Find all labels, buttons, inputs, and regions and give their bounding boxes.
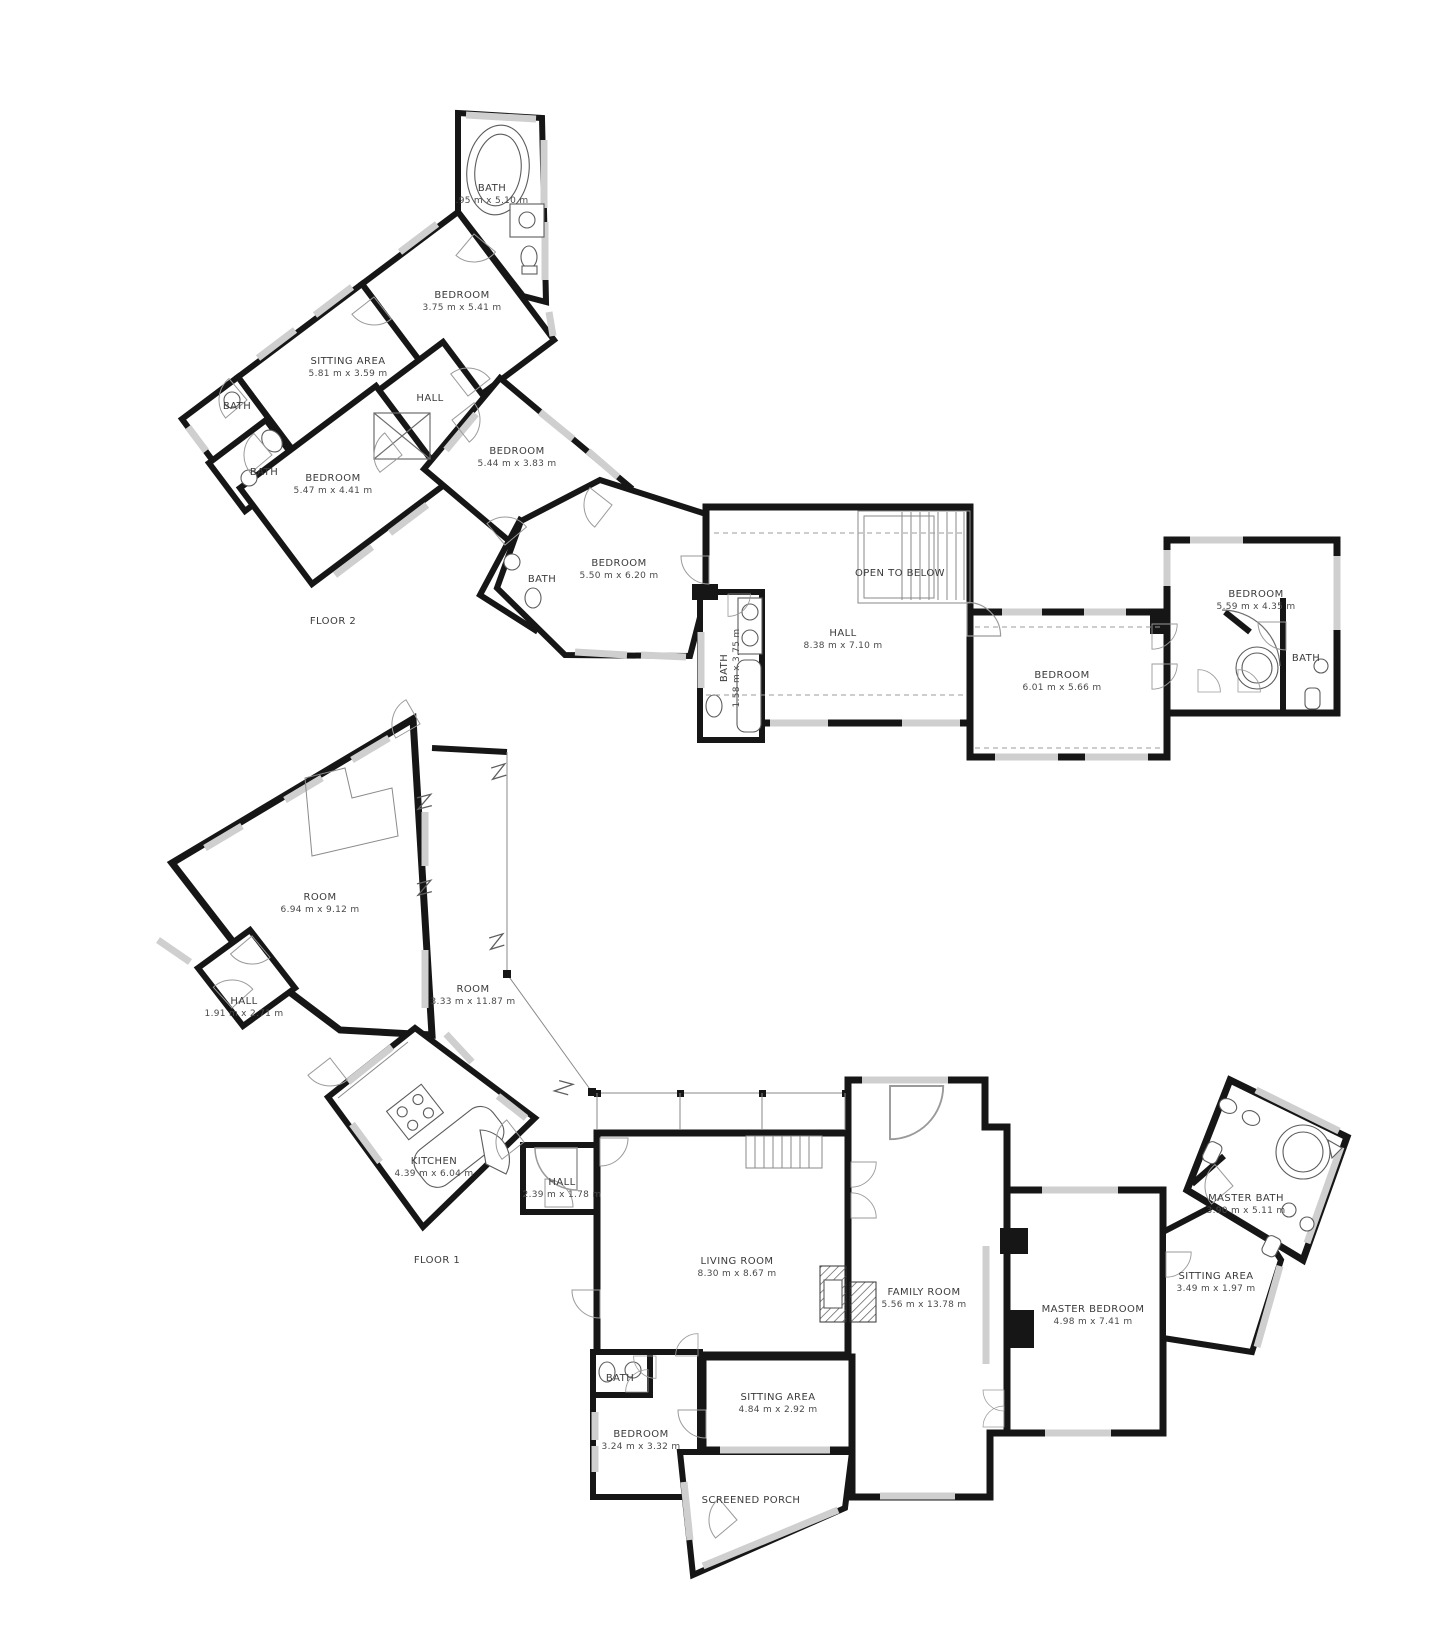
room-label: BEDROOM	[613, 1429, 668, 1440]
floor-2-walls	[182, 113, 1337, 757]
room-label: BEDROOM	[305, 473, 360, 484]
wall-block	[1000, 1228, 1028, 1254]
room-dims: 6.94 m x 9.12 m	[281, 905, 360, 915]
toilet-icon	[706, 695, 722, 717]
room-label: SITTING AREA	[310, 356, 385, 367]
corridor-wall	[432, 748, 507, 752]
room-label: BATH	[478, 183, 506, 194]
room-label: ROOM	[303, 892, 336, 903]
room-dims: 4.84 m x 2.92 m	[739, 1405, 818, 1415]
room-label: BEDROOM	[1034, 670, 1089, 681]
room-label: BATH	[528, 574, 556, 585]
room-dims: 5.50 m x 6.20 m	[580, 571, 659, 581]
room-dims: 3.33 m x 11.87 m	[431, 997, 516, 1007]
room-label: MASTER BATH	[1208, 1193, 1284, 1204]
room-dims: 3.24 m x 3.32 m	[602, 1442, 681, 1452]
room-label: BEDROOM	[489, 446, 544, 457]
room-label: LIVING ROOM	[701, 1256, 774, 1267]
room-label: FAMILY ROOM	[887, 1287, 960, 1298]
wall-block	[692, 584, 718, 600]
wall-block	[1150, 612, 1167, 634]
room-dims: 5.47 m x 4.41 m	[294, 486, 373, 496]
room-label: BEDROOM	[591, 558, 646, 569]
sink-icon	[510, 204, 544, 237]
wall-block	[1008, 1310, 1034, 1348]
room-dims: 3.75 m x 5.41 m	[423, 303, 502, 313]
floor-plan-page: BATH .95 m x 5.10 m BEDROOM 3.75 m x 5.4…	[0, 0, 1445, 1632]
room-dims: 1.91 m x 2.71 m	[205, 1009, 284, 1019]
room-label: SCREENED PORCH	[702, 1495, 801, 1506]
room-label: BATH	[606, 1373, 634, 1384]
room-label: OPEN TO BELOW	[855, 568, 945, 579]
room-dims: 2.39 m x 1.78 m	[523, 1190, 602, 1200]
room-dims: 4.39 m x 6.04 m	[395, 1169, 474, 1179]
room-dims: 8.30 m x 8.67 m	[698, 1269, 777, 1279]
room-label: BEDROOM	[1228, 589, 1283, 600]
room-label: SITTING AREA	[1178, 1271, 1253, 1282]
room-label: HALL	[416, 393, 443, 404]
room-label: HALL	[230, 996, 257, 1007]
room-label: ROOM	[456, 984, 489, 995]
floor-title: FLOOR 1	[414, 1255, 460, 1266]
room-label: HALL	[829, 628, 856, 639]
toilet-icon	[521, 246, 537, 274]
wall-post	[503, 970, 511, 978]
floor-1-plan: ROOM 6.94 m x 9.12 m HALL 1.91 m x 2.71 …	[158, 700, 1347, 1575]
kitchen-outline	[328, 1028, 535, 1227]
room-dims: 5.56 m x 13.78 m	[882, 1300, 967, 1310]
room-label: BATH	[1292, 653, 1320, 664]
corridor-open-edge	[507, 974, 592, 1092]
room-dims: 6.01 m x 5.66 m	[1023, 683, 1102, 693]
room-label: BEDROOM	[434, 290, 489, 301]
room-dims: 8.38 m x 7.10 m	[804, 641, 883, 651]
room-dims: 4.98 m x 7.41 m	[1054, 1317, 1133, 1327]
room-dims: 3.90 m x 5.11 m	[1207, 1206, 1286, 1216]
room-label: BATH	[250, 467, 278, 478]
room-label: BATH	[719, 654, 730, 682]
living-room-outline	[597, 1133, 848, 1355]
sink-icon	[1300, 1217, 1314, 1231]
room-label: SITTING AREA	[740, 1392, 815, 1403]
deck-rail	[594, 1090, 849, 1130]
room-dims: .95 m x 5.10 m	[456, 196, 529, 206]
floor-2-plan: BATH .95 m x 5.10 m BEDROOM 3.75 m x 5.4…	[182, 113, 1337, 757]
room-dims: 5.44 m x 3.83 m	[478, 459, 557, 469]
toilet-icon	[525, 588, 541, 608]
room-dims: 5.81 m x 3.59 m	[309, 369, 388, 379]
sitting-area-outline	[703, 1357, 852, 1450]
toilet-icon	[1305, 688, 1320, 709]
room-label: MASTER BEDROOM	[1042, 1304, 1145, 1315]
room-dims: 5.59 m x 4.35 m	[1217, 602, 1296, 612]
floor-title: FLOOR 2	[310, 616, 356, 627]
room-label: BATH	[223, 401, 251, 412]
floor-plan-canvas: BATH .95 m x 5.10 m BEDROOM 3.75 m x 5.4…	[0, 0, 1445, 1632]
sink-icon	[504, 554, 520, 570]
room-label: HALL	[548, 1177, 575, 1188]
room-label: KITCHEN	[411, 1156, 457, 1167]
room-dims: 3.49 m x 1.97 m	[1177, 1284, 1256, 1294]
room-dims: 1.58 m x 3.75 m	[732, 629, 742, 708]
